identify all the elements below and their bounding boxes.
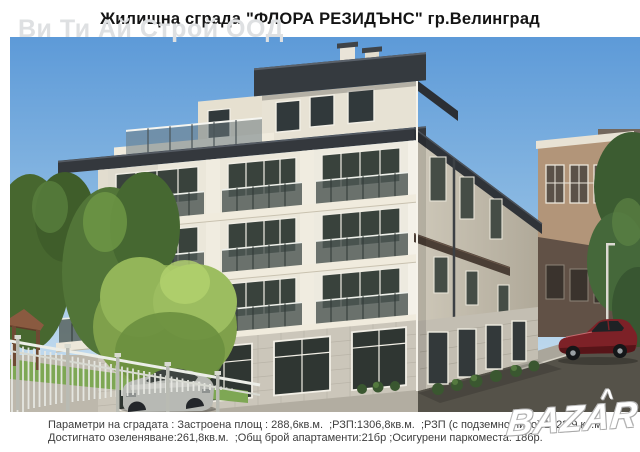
bazar-watermark-text: BAZAR bbox=[505, 393, 640, 444]
company-watermark: Ви Ти Ай Строй ООД bbox=[18, 15, 284, 44]
bazar-watermark: BAZAR ^ bbox=[505, 393, 640, 445]
bazar-watermark-accent: ^ bbox=[599, 384, 616, 411]
building-render-photo bbox=[10, 37, 640, 412]
listing-image-page: Жилищна сграда "ФЛОРА РЕЗИДЪНС" гр.Велин… bbox=[0, 0, 640, 452]
